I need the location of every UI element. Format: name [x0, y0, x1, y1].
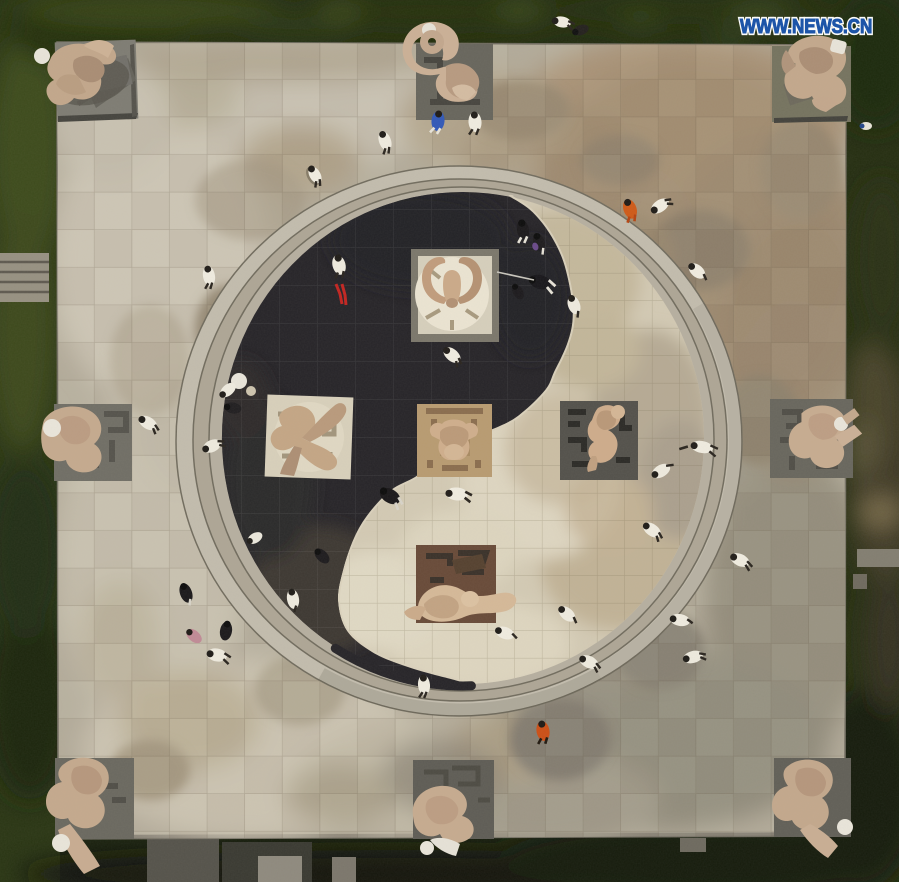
svg-text:WWW.NEWS.CN: WWW.NEWS.CN — [740, 15, 872, 38]
